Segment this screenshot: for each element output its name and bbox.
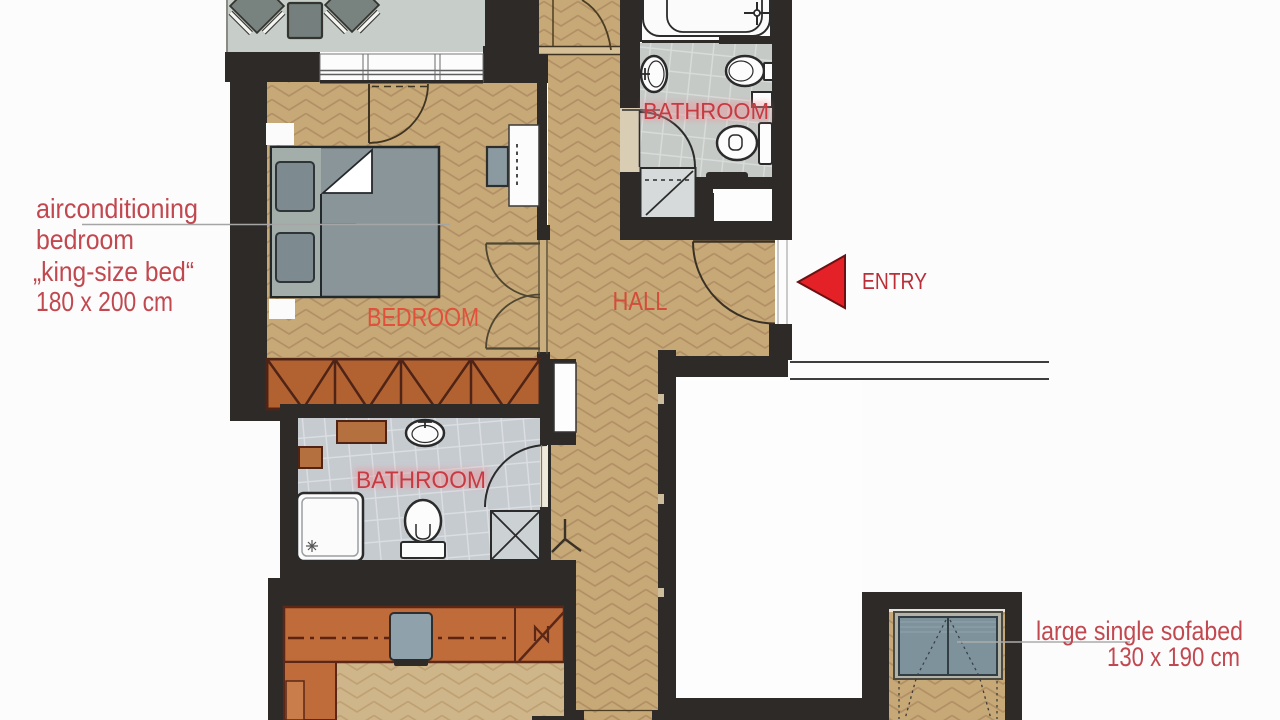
- svg-text:BATHROOM: BATHROOM: [643, 98, 769, 124]
- svg-text:BATHROOM: BATHROOM: [356, 467, 486, 494]
- svg-text:ENTRY: ENTRY: [862, 268, 927, 294]
- svg-text:bedroom: bedroom: [36, 224, 134, 255]
- svg-text:airconditioning: airconditioning: [36, 193, 198, 224]
- svg-text:„king-size bed“: „king-size bed“: [33, 256, 194, 287]
- svg-text:HALL: HALL: [613, 286, 668, 316]
- svg-text:130 x 190 cm: 130 x 190 cm: [1107, 642, 1240, 672]
- svg-text:180 x 200 cm: 180 x 200 cm: [36, 286, 173, 317]
- svg-text:BEDROOM: BEDROOM: [367, 302, 479, 332]
